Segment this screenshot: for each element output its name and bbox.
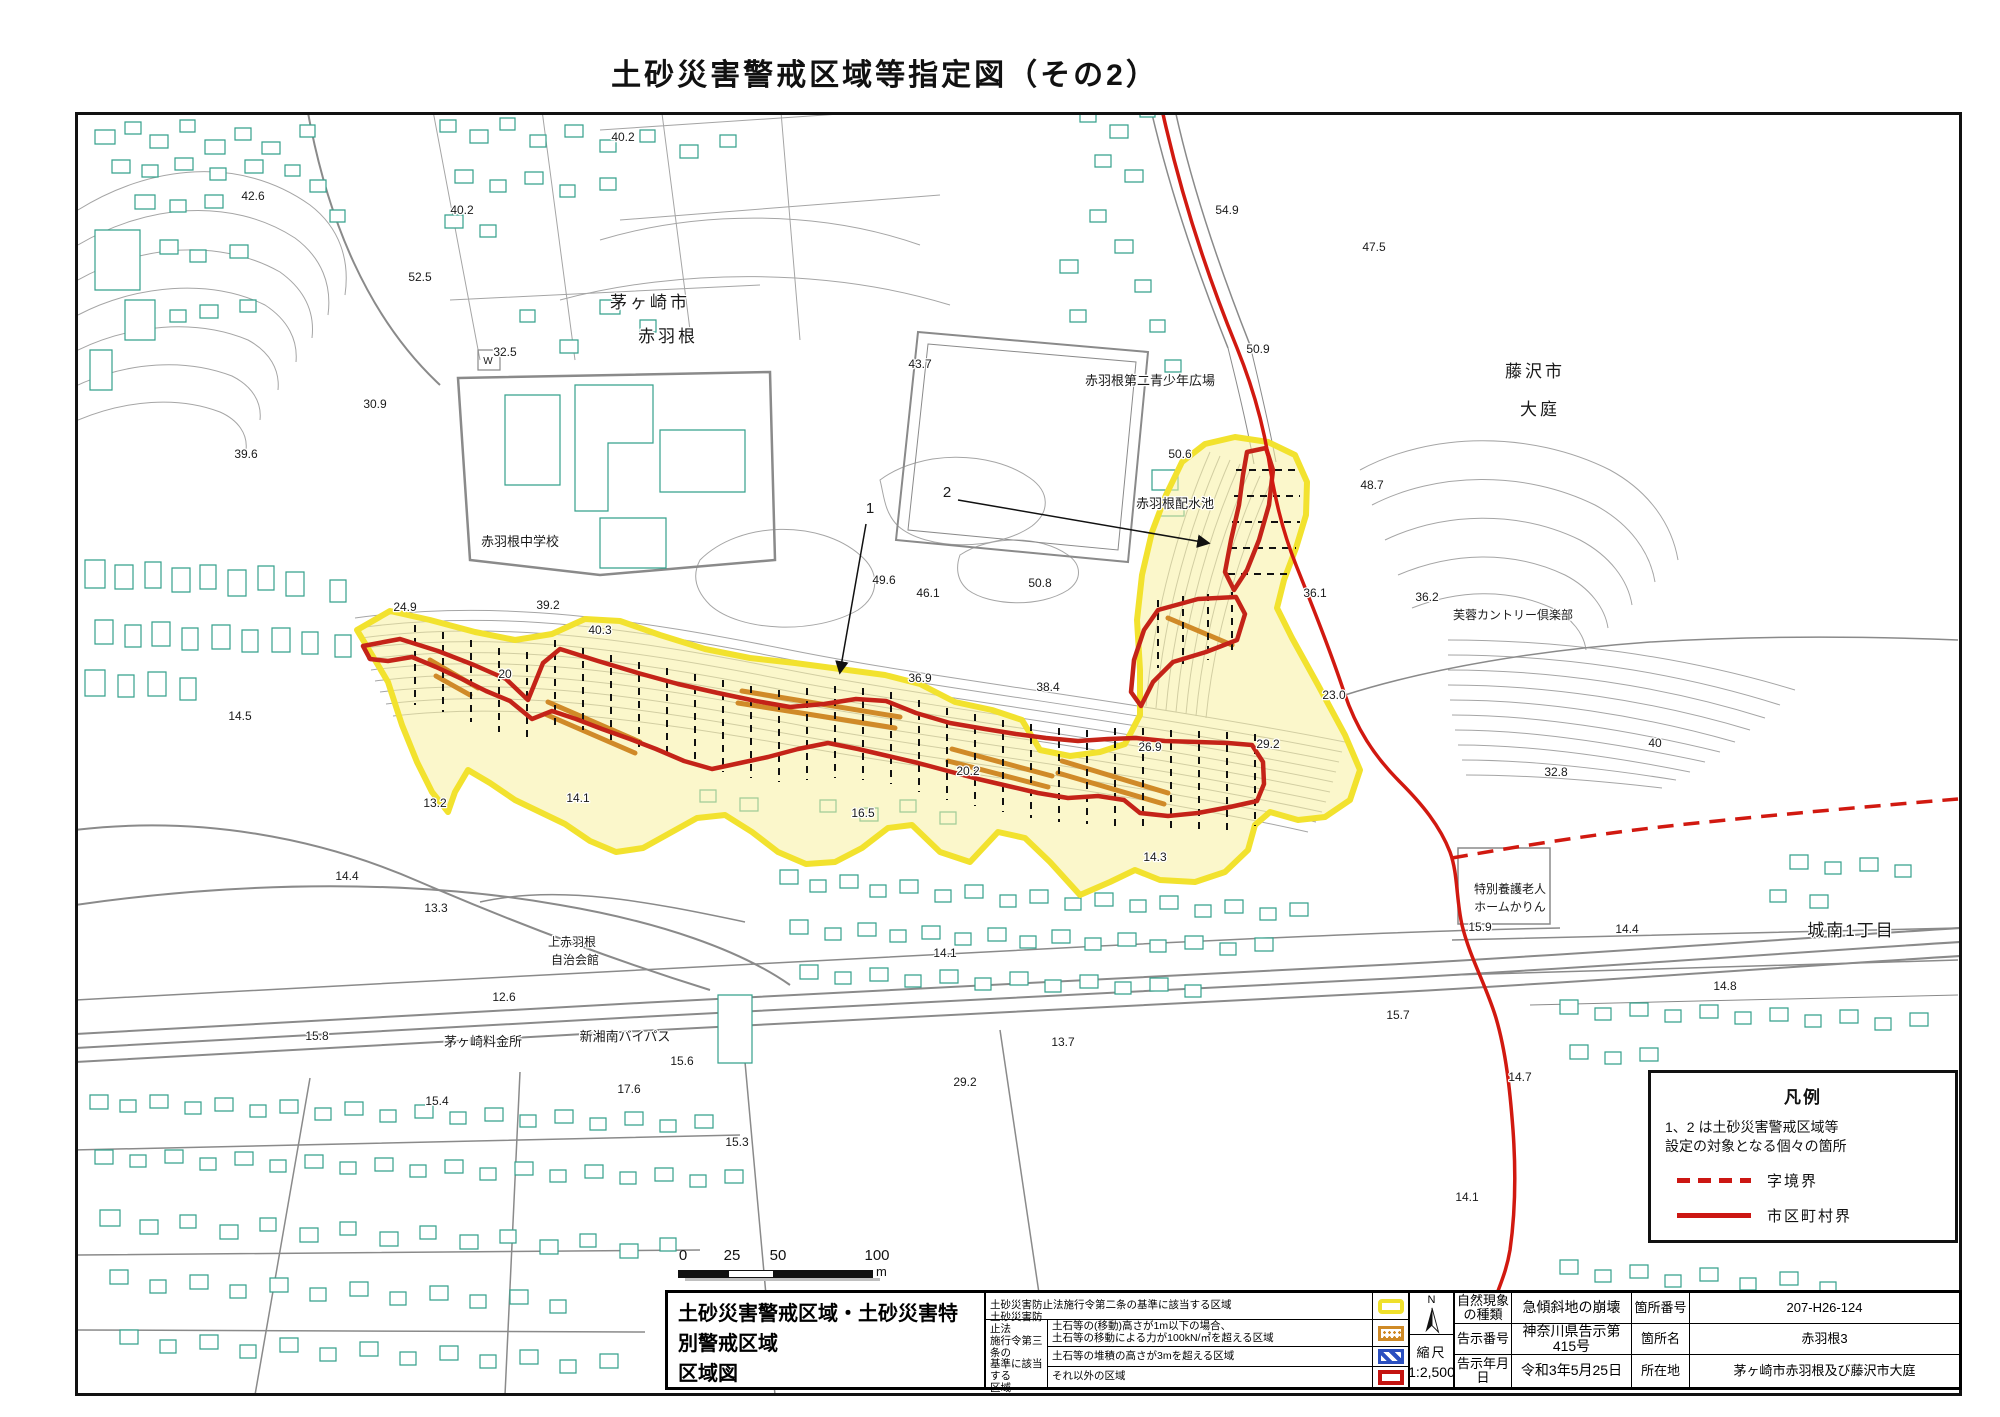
solid-line-sample [1677,1213,1751,1218]
map-sheet-title-line2: 区域図 [678,1359,974,1389]
north-arrow-cell: N [1410,1293,1453,1335]
site-name-value: 赤羽根3 [1690,1324,1959,1355]
location-label: 所在地 [1632,1355,1690,1387]
legend-note-line2: 設定の対象となる個々の箇所 [1665,1137,1941,1156]
hazard-map-page: 土砂災害警戒区域等指定図（その2） [0,0,2000,1417]
notice-date-value: 令和3年5月25日 [1512,1355,1632,1387]
notice-date-label: 告示年月日 [1455,1355,1512,1387]
scale-cell: 縮尺 1:2,500 [1410,1335,1453,1387]
scale-segment [679,1271,728,1277]
deposit-zone-symbol [1378,1349,1404,1364]
symbol-cell-other [1373,1367,1410,1387]
north-arrow-icon [1421,1306,1443,1334]
scale-bar-segments [678,1270,873,1278]
map-sheet-title-line1: 土砂災害警戒区域・土砂災害特別警戒区域 [678,1299,974,1359]
scale-bar-shadow [685,1278,880,1281]
scale-segment [728,1271,774,1277]
warning-zone-symbol [1378,1299,1404,1314]
phenomenon-label: 自然現象の種類 [1455,1293,1512,1324]
aza-boundary-label: 字境界 [1767,1170,1818,1191]
symbol-cell-deposit [1373,1347,1410,1367]
article3-row3-cell: それ以外の区域 [1048,1367,1373,1387]
notice-no-value: 神奈川県告示第415号 [1512,1324,1632,1355]
location-value: 茅ヶ崎市赤羽根及び藤沢市大庭 [1690,1355,1959,1387]
scale-label: 縮尺 [1416,1342,1446,1361]
dashed-line-sample [1677,1178,1751,1183]
symbol-cell-warning [1373,1293,1410,1320]
scale-tick: 100 [864,1247,889,1264]
other-zone-symbol [1378,1370,1404,1385]
notice-info-table: 自然現象の種類 急傾斜地の崩壊 箇所番号 207-H26-124 告示番号 神奈… [1455,1293,1959,1387]
scale-bar: 0 25 50 100 m [678,1247,908,1281]
scale-segment [774,1271,872,1277]
symbol-cell-debris-force [1373,1320,1410,1347]
map-sheet-title-cell: 土砂災害警戒区域・土砂災害特別警戒区域 区域図 [668,1293,986,1387]
law-criteria-table: 土砂災害防止法施行令第二条の基準に該当する区域 土砂災害防止法 施行令第三条の … [986,1293,1410,1387]
scale-value: 1:2,500 [1408,1364,1455,1380]
north-label: N [1428,1295,1436,1306]
site-no-label: 箇所番号 [1632,1293,1690,1324]
article3-group-label-cell: 土砂災害防止法 施行令第三条の 基準に該当する 区域 [986,1320,1048,1387]
legend-row-aza-boundary: 字境界 [1665,1170,1941,1191]
scale-tick: 0 [679,1247,687,1264]
notice-no-label: 告示番号 [1455,1324,1512,1355]
article3-row1-cell: 土石等の(移動)高さが1m以下の場合、 土石等の移動による力が100kN/㎡を超… [1048,1320,1373,1347]
scale-tick: 50 [770,1247,787,1264]
scale-tick: 25 [724,1247,741,1264]
article2-criteria-cell: 土砂災害防止法施行令第二条の基準に該当する区域 [986,1293,1373,1320]
site-no-value: 207-H26-124 [1690,1293,1959,1324]
legend-title: 凡例 [1665,1083,1941,1108]
north-scale-column: N 縮尺 1:2,500 [1410,1293,1455,1387]
scale-bar-ticks: 0 25 50 100 [678,1247,908,1265]
legend-row-municipal-boundary: 市区町村界 [1665,1205,1941,1226]
phenomenon-value: 急傾斜地の崩壊 [1512,1293,1632,1324]
scale-unit: m [876,1265,887,1278]
article3-row2-cell: 土石等の堆積の高さが3mを超える区域 [1048,1347,1373,1367]
info-table: 土砂災害警戒区域・土砂災害特別警戒区域 区域図 土砂災害防止法施行令第二条の基準… [665,1290,1962,1390]
legend-box: 凡例 1、2 は土砂災害警戒区域等 設定の対象となる個々の箇所 字境界 市区町村… [1648,1070,1958,1243]
site-name-label: 箇所名 [1632,1324,1690,1355]
debris-force-zone-symbol [1378,1326,1404,1341]
municipal-boundary-label: 市区町村界 [1767,1205,1852,1226]
legend-note-line1: 1、2 は土砂災害警戒区域等 [1665,1118,1941,1137]
